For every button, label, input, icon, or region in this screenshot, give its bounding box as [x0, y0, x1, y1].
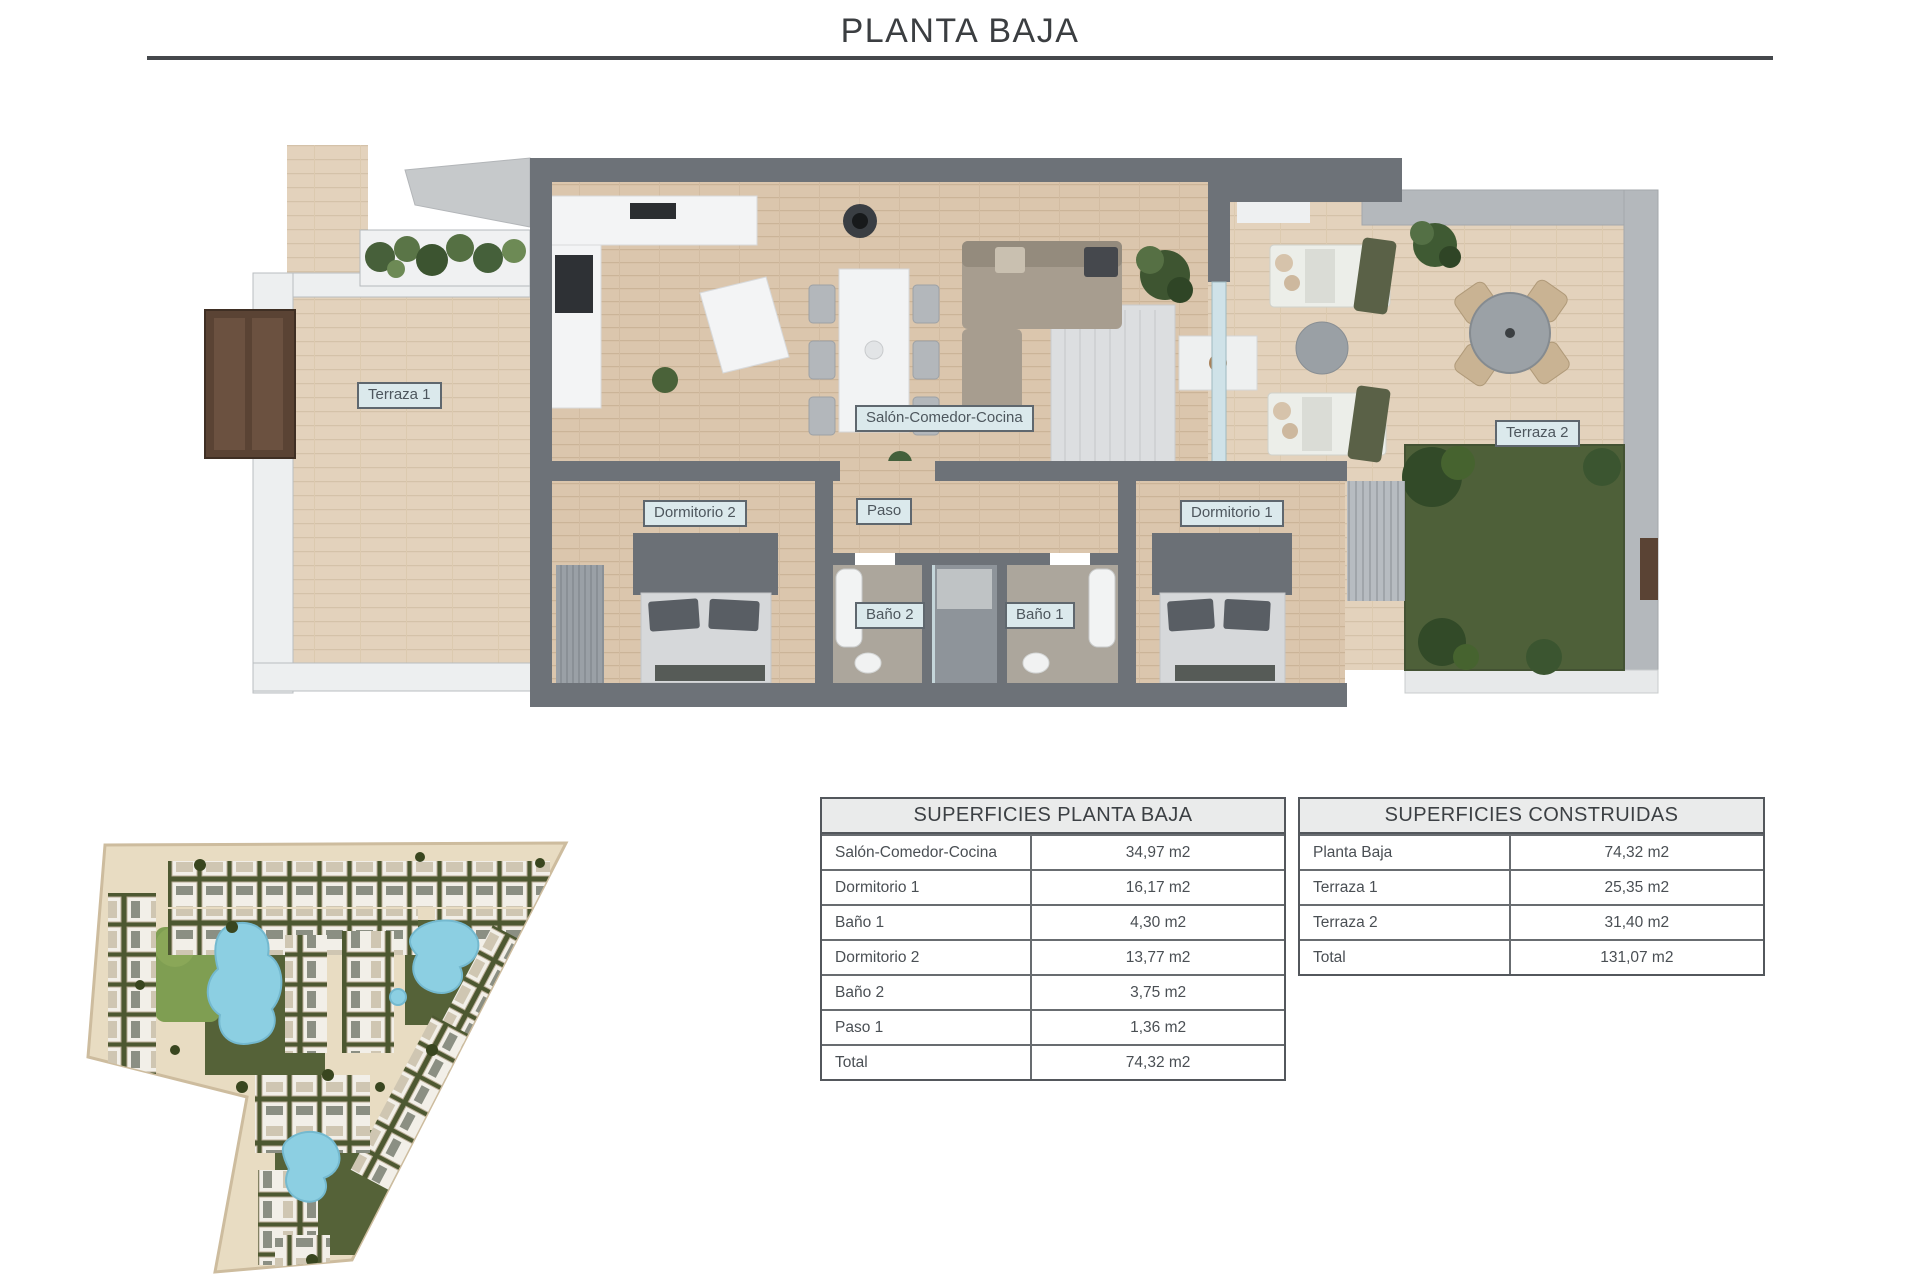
room-name-cell: Baño 2 — [822, 976, 1032, 1009]
table-row: Dormitorio 2 13,77 m2 — [822, 939, 1284, 974]
table-row: Paso 1 1,36 m2 — [822, 1009, 1284, 1044]
table-header: SUPERFICIES CONSTRUIDAS — [1300, 799, 1763, 834]
bed-dormitorio-2 — [633, 533, 778, 683]
side-table — [1296, 322, 1348, 374]
room-label-bano-2: Baño 2 — [855, 602, 925, 629]
room-label-dormitorio-1: Dormitorio 1 — [1180, 500, 1284, 527]
area-value-cell: 34,97 m2 — [1032, 836, 1284, 869]
title-divider-line — [147, 56, 1773, 60]
room-label-salon-comedor-cocina: Salón-Comedor-Cocina — [855, 405, 1034, 432]
table-row: Baño 1 4,30 m2 — [822, 904, 1284, 939]
table-row: Salón-Comedor-Cocina 34,97 m2 — [822, 834, 1284, 869]
site-plan — [80, 835, 655, 1277]
table-row: Planta Baja 74,32 m2 — [1300, 834, 1763, 869]
area-value-cell: 25,35 m2 — [1511, 871, 1763, 904]
area-value-cell: 13,77 m2 — [1032, 941, 1284, 974]
table-row: Total 74,32 m2 — [822, 1044, 1284, 1079]
table-row: Baño 2 3,75 m2 — [822, 974, 1284, 1009]
table-superficies-planta-baja: SUPERFICIES PLANTA BAJA Salón-Comedor-Co… — [820, 797, 1286, 1081]
floor-plan: Terraza 1 Salón-Comedor-Cocina Dormitori… — [200, 145, 1660, 711]
room-label-paso: Paso — [856, 498, 912, 525]
site-plan-rendering — [80, 835, 655, 1277]
room-name-cell: Baño 1 — [822, 906, 1032, 939]
island-plant — [652, 367, 678, 393]
table-superficies-construidas: SUPERFICIES CONSTRUIDAS Planta Baja 74,3… — [1298, 797, 1765, 976]
room-name-cell: Dormitorio 2 — [822, 941, 1032, 974]
room-label-bano-1: Baño 1 — [1005, 602, 1075, 629]
sun-lounger-1 — [1270, 237, 1397, 315]
area-value-cell: 3,75 m2 — [1032, 976, 1284, 1009]
room-name-cell: Salón-Comedor-Cocina — [822, 836, 1032, 869]
area-value-cell: 1,36 m2 — [1032, 1011, 1284, 1044]
entrance-gate — [205, 310, 295, 458]
area-value-cell: 16,17 m2 — [1032, 871, 1284, 904]
living-area — [549, 164, 1257, 479]
area-value-cell: 74,32 m2 — [1511, 836, 1763, 869]
planter-box — [360, 230, 530, 286]
curtain — [556, 565, 604, 683]
sun-lounger-2 — [1268, 385, 1391, 463]
area-value-cell: 4,30 m2 — [1032, 906, 1284, 939]
brochure-page: PLANTA BAJA — [0, 0, 1920, 1280]
terrace-gate — [1640, 538, 1658, 600]
table-header: SUPERFICIES PLANTA BAJA — [822, 799, 1284, 834]
artificial-grass — [1402, 445, 1624, 675]
rug — [1051, 305, 1175, 479]
table-row: Terraza 1 25,35 m2 — [1300, 869, 1763, 904]
table-row: Terraza 2 31,40 m2 — [1300, 904, 1763, 939]
area-value-cell: 31,40 m2 — [1511, 906, 1763, 939]
table-row: Dormitorio 1 16,17 m2 — [822, 869, 1284, 904]
table-row: Total 131,07 m2 — [1300, 939, 1763, 974]
shower-room — [932, 565, 997, 685]
pergola-blinds — [1347, 481, 1405, 601]
room-name-cell: Dormitorio 1 — [822, 871, 1032, 904]
room-label-terraza-1: Terraza 1 — [357, 382, 442, 409]
pendant-lamp — [843, 204, 877, 238]
room-name-cell: Planta Baja — [1300, 836, 1511, 869]
area-value-cell: 74,32 m2 — [1032, 1046, 1284, 1079]
room-label-dormitorio-2: Dormitorio 2 — [643, 500, 747, 527]
area-value-cell: 131,07 m2 — [1511, 941, 1763, 974]
terraza-1-area — [205, 145, 535, 693]
page-title: PLANTA BAJA — [0, 12, 1920, 51]
room-name-cell: Paso 1 — [822, 1011, 1032, 1044]
room-label-terraza-2: Terraza 2 — [1495, 420, 1580, 447]
room-name-cell: Terraza 1 — [1300, 871, 1511, 904]
room-name-cell: Total — [822, 1046, 1032, 1079]
room-name-cell: Total — [1300, 941, 1511, 974]
bed-dormitorio-1 — [1152, 533, 1292, 683]
room-name-cell: Terraza 2 — [1300, 906, 1511, 939]
